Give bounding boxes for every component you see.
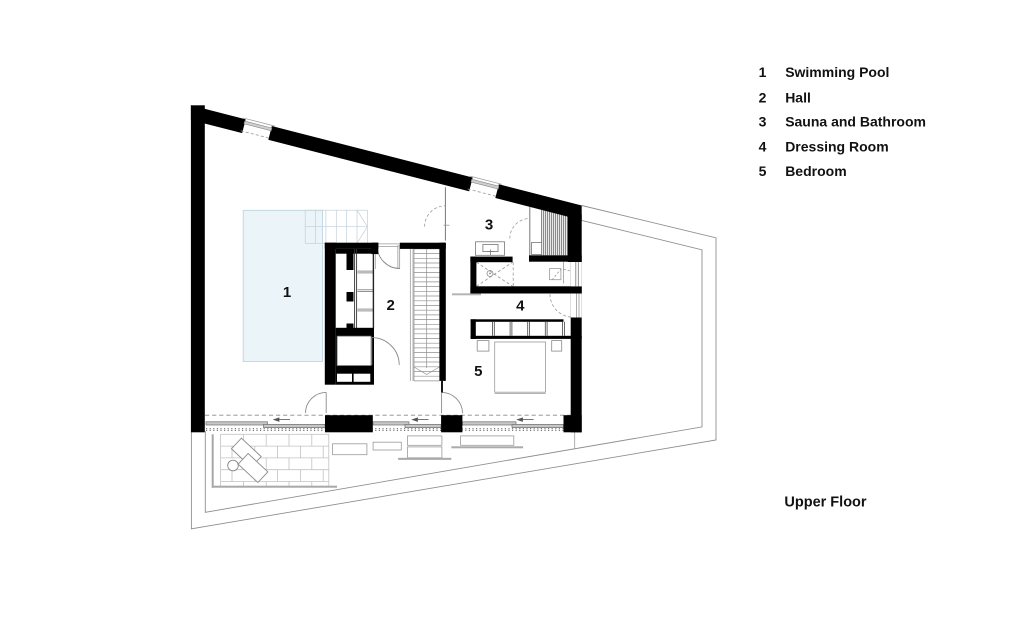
svg-text:Swimming Pool: Swimming Pool (785, 64, 889, 80)
svg-text:5: 5 (474, 363, 482, 380)
svg-text:2: 2 (759, 89, 767, 105)
svg-text:Hall: Hall (785, 89, 811, 105)
svg-text:Bedroom: Bedroom (785, 163, 846, 179)
svg-text:4: 4 (516, 298, 525, 315)
svg-text:1: 1 (283, 284, 291, 301)
svg-text:3: 3 (485, 216, 493, 233)
svg-text:4: 4 (759, 138, 767, 154)
svg-text:Dressing Room: Dressing Room (785, 138, 888, 154)
svg-text:Upper Floor: Upper Floor (784, 495, 867, 511)
svg-text:3: 3 (759, 114, 767, 130)
svg-text:Sauna and Bathroom: Sauna and Bathroom (785, 114, 926, 130)
svg-text:2: 2 (387, 297, 395, 314)
svg-text:1: 1 (759, 64, 767, 80)
svg-text:5: 5 (759, 163, 767, 179)
